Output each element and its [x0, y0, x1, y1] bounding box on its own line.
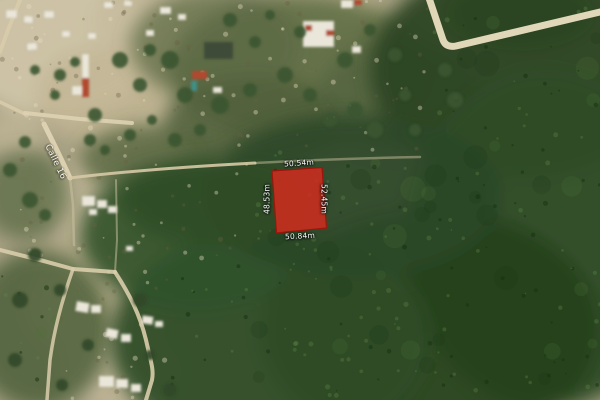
- satellite-imagery: [0, 0, 600, 400]
- dark-roof-building: [204, 42, 233, 59]
- pool: [191, 81, 197, 91]
- property-map-screenshot: Calle 16 50.54m 50.84m 48.53m 52.45m: [0, 0, 600, 400]
- satellite-map[interactable]: Calle 16 50.54m 50.84m 48.53m 52.45m: [0, 0, 600, 400]
